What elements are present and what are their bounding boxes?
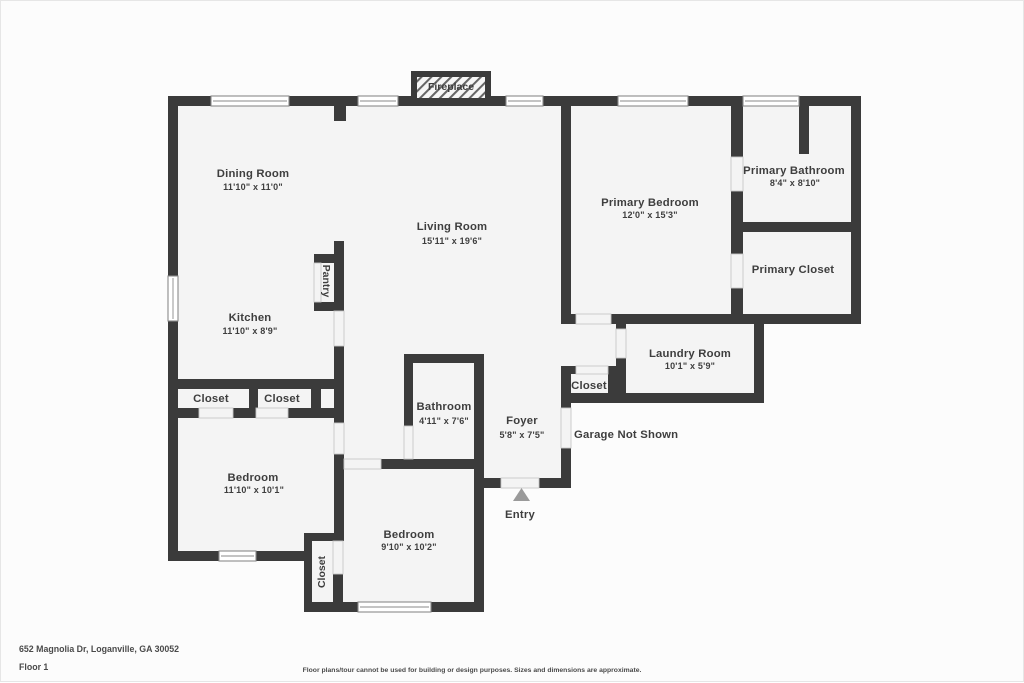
entry-label: Entry	[505, 509, 535, 521]
wall-segment	[611, 314, 861, 324]
wall-segment	[314, 302, 343, 311]
door-opening	[314, 263, 321, 302]
door-opening	[501, 478, 539, 488]
floor-plan-svg: Fireplace Dining Room 11'10" x 11'0" Liv…	[1, 1, 1024, 683]
primary-closet-label: Primary Closet	[752, 264, 835, 276]
bathroom-label: Bathroom	[417, 401, 472, 413]
foyer-label: Foyer	[506, 415, 538, 427]
door-opening	[334, 423, 344, 454]
wall-segment	[474, 354, 484, 612]
wall-segment	[168, 408, 199, 418]
door-opening	[576, 366, 608, 374]
bedroom-bottom-dims: 9'10" x 10'2"	[381, 542, 436, 552]
door-opening	[576, 314, 611, 324]
bedroom-bottom-label: Bedroom	[384, 529, 435, 541]
bedroom-closet-label: Closet	[316, 555, 328, 588]
disclaimer-text: Floor plans/tour cannot be used for buil…	[303, 667, 642, 674]
wall-segment	[334, 241, 344, 311]
wall-segment	[851, 96, 861, 324]
fireplace-label: Fireplace	[428, 81, 474, 93]
wall-segment	[304, 533, 312, 612]
wall-segment	[561, 393, 764, 403]
door-opening	[616, 329, 626, 358]
kitchen-dims: 11'10" x 8'9"	[223, 326, 278, 336]
wall-segment	[616, 314, 626, 329]
primary-bathroom-dims: 8'4" x 8'10"	[770, 178, 820, 188]
wall-segment	[799, 96, 809, 154]
wall-segment	[381, 459, 484, 469]
primary-bedroom-label: Primary Bedroom	[601, 197, 699, 209]
primary-bedroom-dims: 12'0" x 15'3"	[622, 210, 677, 220]
wall-segment	[608, 366, 618, 401]
wall-segment	[311, 379, 321, 418]
door-opening	[333, 541, 343, 574]
garage-note: Garage Not Shown	[574, 429, 678, 441]
wall-segment	[404, 354, 484, 363]
wall-segment	[304, 533, 343, 541]
door-opening	[731, 157, 743, 191]
door-opening	[334, 311, 344, 346]
wall-segment	[334, 96, 346, 121]
wall-segment	[404, 354, 413, 426]
floor-number-text: Floor 1	[19, 662, 48, 672]
door-opening	[404, 426, 413, 459]
door-opening	[256, 408, 288, 418]
entry-arrow-icon	[513, 488, 530, 501]
dining-room-dims: 11'10" x 11'0"	[223, 182, 283, 192]
wall-segment	[731, 232, 743, 254]
wall-segment	[754, 314, 764, 403]
door-opening	[561, 408, 571, 448]
floor-plan-page: Fireplace Dining Room 11'10" x 11'0" Liv…	[0, 0, 1024, 682]
dining-room-label: Dining Room	[217, 168, 289, 180]
wall-segment	[731, 222, 861, 232]
bedroom-left-label: Bedroom	[228, 472, 279, 484]
pantry-label: Pantry	[320, 265, 332, 298]
closet-1-label: Closet	[193, 393, 229, 405]
door-opening	[199, 408, 233, 418]
wall-segment	[334, 454, 344, 541]
laundry-room-dims: 10'1" x 5'9"	[665, 361, 715, 371]
address-text: 652 Magnolia Dr, Loganville, GA 30052	[19, 644, 179, 654]
wall-segment	[731, 96, 743, 157]
wall-segment	[561, 96, 571, 321]
hall-closet-label: Closet	[571, 380, 607, 392]
laundry-room-label: Laundry Room	[649, 348, 731, 360]
wall-segment	[561, 314, 576, 324]
primary-bathroom-label: Primary Bathroom	[743, 165, 845, 177]
living-room-dims: 15'11" x 19'6"	[422, 236, 482, 246]
living-room-label: Living Room	[417, 221, 488, 233]
wall-segment	[561, 366, 571, 408]
door-opening	[731, 254, 743, 288]
wall-segment	[539, 478, 569, 488]
foyer-dims: 5'8" x 7'5"	[499, 430, 544, 440]
fireplace: Fireplace	[411, 71, 491, 103]
wall-segment	[314, 254, 343, 263]
door-opening	[344, 459, 381, 469]
wall-segment	[168, 96, 178, 561]
bathroom-dims: 4'11" x 7'6"	[419, 416, 469, 426]
closet-2-label: Closet	[264, 393, 300, 405]
kitchen-label: Kitchen	[229, 312, 272, 324]
bedroom-left-dims: 11'10" x 10'1"	[224, 485, 284, 495]
